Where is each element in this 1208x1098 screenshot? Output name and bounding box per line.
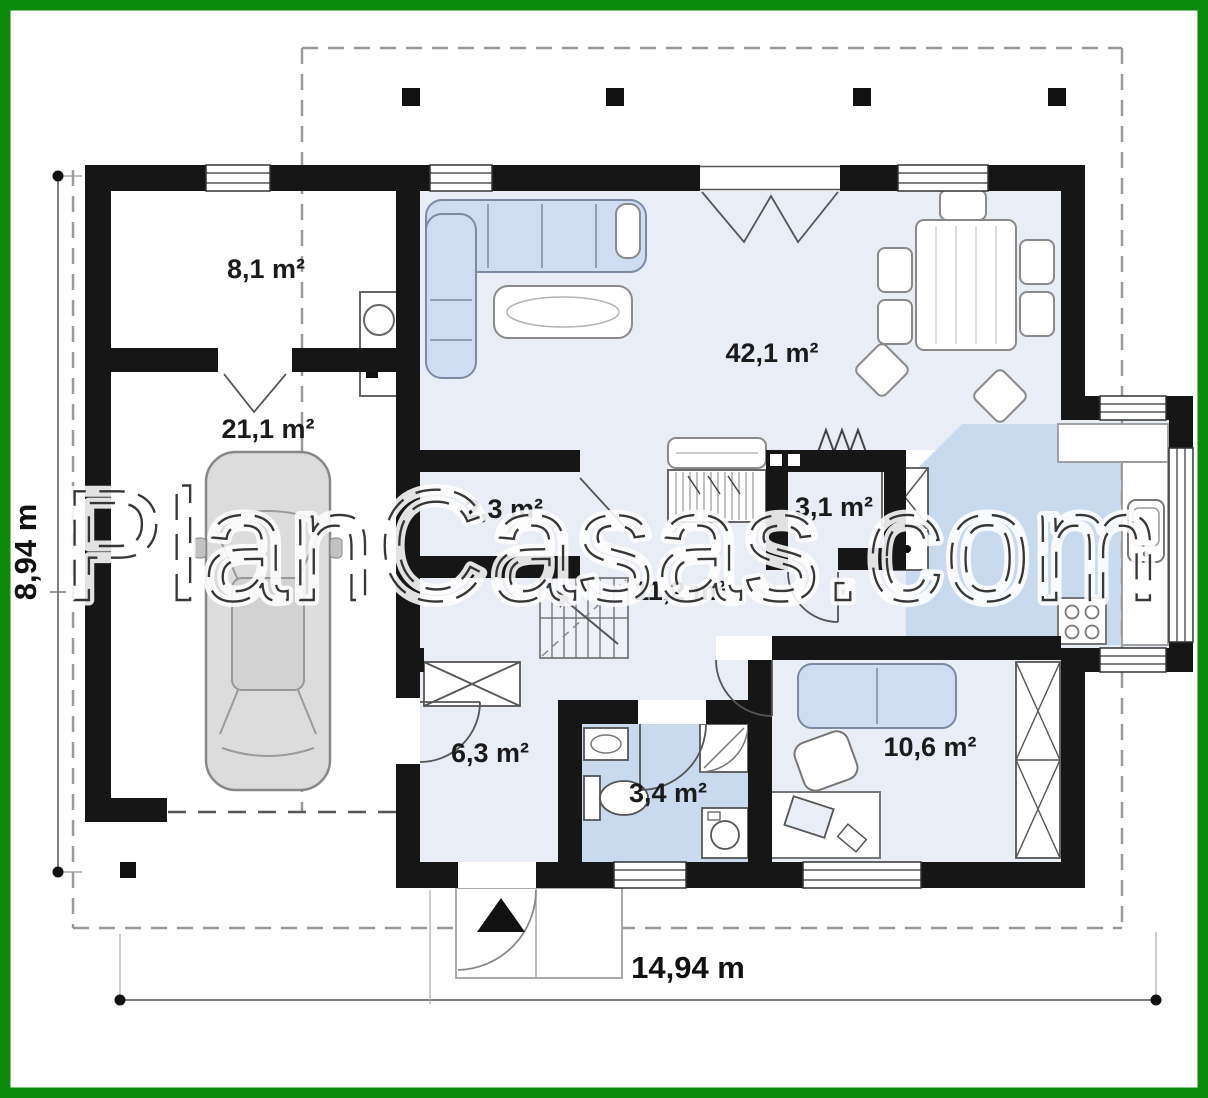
roof-post-4: [1048, 88, 1066, 106]
side-table: [616, 204, 640, 258]
boiler-icon: [364, 305, 394, 335]
floor-plan-drawing: 8,1 m² 21,1 m² 42,1 m² 2,3 m² 3,1 m² 11,…: [0, 0, 1208, 1098]
room-label-storage: 8,1 m²: [227, 254, 305, 284]
floor-plan-page: 8,1 m² 21,1 m² 42,1 m² 2,3 m² 3,1 m² 11,…: [0, 0, 1208, 1098]
window-bay-top: [1100, 396, 1166, 420]
dining-chair-left-2: [878, 300, 912, 344]
room-label-entry: 6,3 m²: [451, 738, 529, 768]
kitchen-counter-top: [1058, 424, 1168, 462]
dimension-bottom: 14,94 m: [115, 890, 1162, 1006]
dimension-label-left: 8,94 m: [8, 504, 43, 601]
wall-right-lower: [1061, 648, 1085, 888]
dining-chair-top: [940, 190, 986, 220]
window-storage: [206, 165, 270, 191]
room-label-living: 42,1 m²: [725, 338, 818, 368]
dim-dot-top: [53, 171, 64, 182]
dining-chair-right-1: [1020, 240, 1054, 284]
storage-door-opening: [218, 348, 292, 372]
office-door-opening: [716, 636, 772, 660]
coffee-table: [494, 286, 632, 338]
window-bay-bottom: [1100, 648, 1166, 672]
bathroom-door-opening: [638, 700, 706, 724]
dim-dot-bottom: [53, 867, 64, 878]
roof-post-2: [606, 88, 624, 106]
porch-slab: [456, 888, 622, 978]
wall-bath-left: [558, 700, 582, 862]
window-dining: [898, 165, 988, 191]
washing-machine: [702, 808, 748, 858]
wall-hall-stub: [396, 648, 424, 672]
toilet-tank: [584, 776, 600, 820]
room-label-office: 10,6 m²: [883, 732, 976, 762]
dining-table: [916, 220, 1016, 350]
roof-post-1: [402, 88, 420, 106]
storage-door-swing: [224, 374, 286, 412]
dining-chair-right-2: [1020, 292, 1054, 336]
dimension-label-bottom: 14,94 m: [631, 950, 745, 985]
watermark: PlanCasas.com PlanCasas.com: [62, 458, 1162, 634]
sofa-vertical: [426, 214, 476, 378]
boiler-unit: [360, 292, 398, 396]
entry-door-opening: [458, 862, 536, 888]
window-bay-right: [1169, 448, 1193, 642]
room-label-garage: 21,1 m²: [221, 414, 314, 444]
entry-wardrobe: [424, 662, 520, 706]
roof-post-3: [853, 88, 871, 106]
entry-porch: [456, 888, 622, 978]
wall-garage-foot: [85, 798, 167, 822]
dim-dot-left: [115, 995, 126, 1006]
watermark-outline: PlanCasas.com: [62, 458, 1162, 634]
dining-chair-left-1: [878, 248, 912, 292]
window-office-room: [803, 862, 921, 888]
roof-post-5: [120, 862, 136, 878]
window-living-left: [430, 165, 492, 191]
dim-dot-right: [1151, 995, 1162, 1006]
window-bathroom: [614, 862, 686, 888]
garage-door-opening: [396, 698, 420, 764]
coffee-table-top: [494, 286, 632, 338]
wall-right-upper: [1061, 165, 1085, 420]
wall-bath-right: [748, 654, 772, 862]
room-label-bath: 3,4 m²: [629, 778, 707, 808]
